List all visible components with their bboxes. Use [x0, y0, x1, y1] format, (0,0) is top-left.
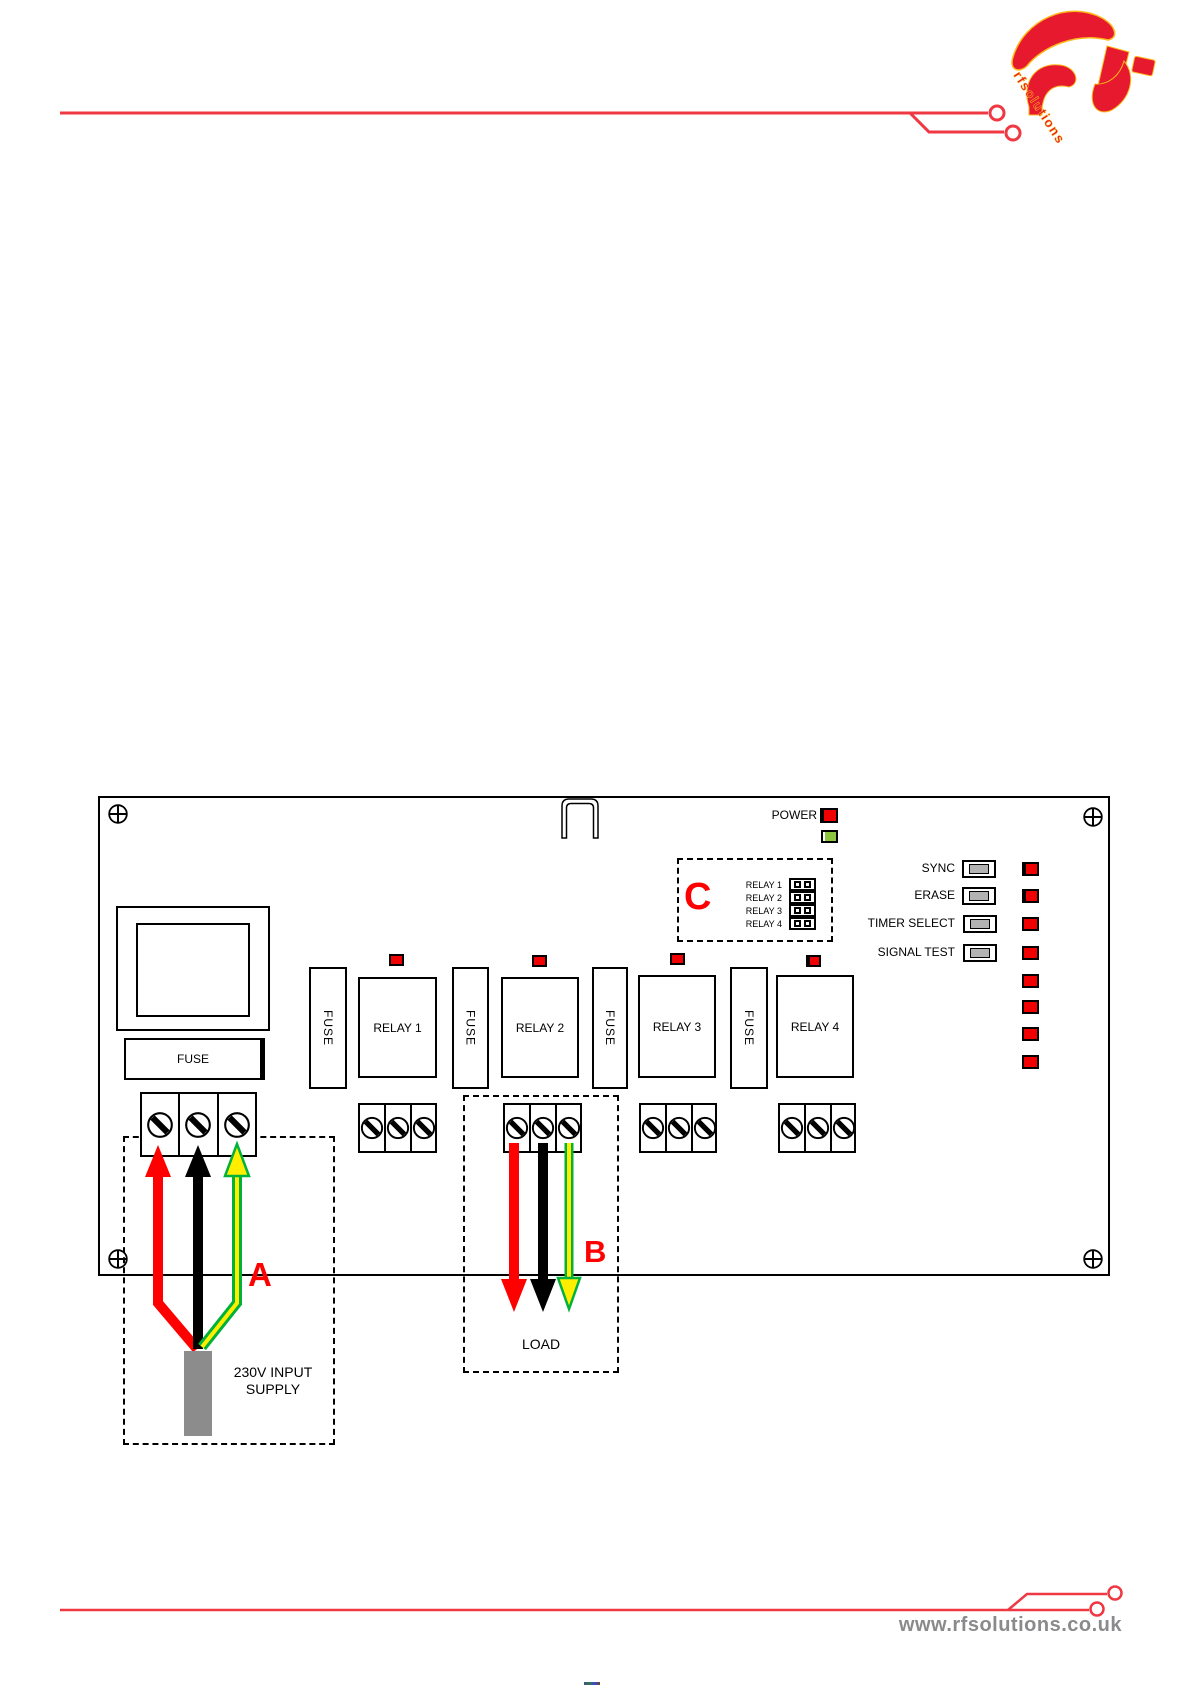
rf-solutions-logo: rfsolutions	[1010, 11, 1155, 147]
terminal-screw-icon	[412, 1116, 436, 1140]
timer-select-button	[963, 915, 997, 933]
status-led	[1022, 1000, 1039, 1014]
status-led	[1022, 946, 1039, 960]
logo-wordmark: rfsolutions	[1010, 68, 1068, 146]
terminal-cell	[505, 1105, 529, 1151]
corner-screw-icon	[1082, 1248, 1104, 1270]
terminal-screw-icon	[360, 1116, 384, 1140]
terminal-cell	[178, 1094, 216, 1155]
terminal-screw-icon	[557, 1116, 581, 1140]
terminal-screw-icon	[531, 1116, 555, 1140]
input-supply-dashed-box	[123, 1136, 335, 1445]
mounting-clip-icon	[555, 793, 605, 839]
power-label: POWER	[667, 808, 817, 822]
terminal-cell	[142, 1094, 178, 1155]
terminal-screw-icon	[832, 1116, 856, 1140]
annotation-letter-a: A	[248, 1258, 272, 1291]
status-led	[1022, 862, 1039, 876]
terminal-screw-icon	[641, 1116, 665, 1140]
button-cap	[969, 864, 989, 874]
erase-button	[962, 887, 996, 905]
terminal-screw-icon	[780, 1116, 804, 1140]
terminal-cell	[691, 1105, 717, 1151]
input-supply-caption-line2: SUPPLY	[197, 1381, 349, 1398]
input-supply-caption-line1: 230V INPUT	[197, 1364, 349, 1381]
relay1-box: RELAY 1	[358, 977, 437, 1078]
signal-test-label: SIGNAL TEST	[805, 945, 955, 959]
status-led	[1022, 1027, 1039, 1041]
logo-r-curl	[1027, 65, 1076, 115]
terminal-cell	[555, 1105, 581, 1151]
relay1-led	[389, 954, 404, 966]
power-green-led	[821, 830, 838, 843]
relay3-led	[670, 953, 685, 965]
annotation-letter-b: B	[584, 1236, 606, 1267]
power-red-led	[820, 808, 838, 823]
input-supply-caption: 230V INPUT SUPPLY	[197, 1364, 349, 1398]
corner-screw-icon	[107, 803, 129, 825]
website-url: www.rfsolutions.co.uk	[822, 1614, 1122, 1637]
logo-bottom-swoosh	[1092, 61, 1131, 112]
status-led	[1022, 889, 1039, 903]
logo-f-crossbar	[1132, 56, 1156, 76]
terminal-cell	[410, 1105, 436, 1151]
fuse-relay4: FUSE	[730, 967, 768, 1089]
relay1-terminal-block	[358, 1103, 437, 1153]
relay3-box: RELAY 3	[638, 975, 716, 1078]
terminal-cell	[641, 1105, 665, 1151]
fuse-relay3: FUSE	[592, 967, 628, 1089]
sync-button	[962, 860, 996, 878]
relay4-box: RELAY 4	[776, 975, 854, 1078]
terminal-screw-icon	[386, 1116, 410, 1140]
terminal-cell	[780, 1105, 804, 1151]
terminal-cell	[830, 1105, 856, 1151]
relay2-terminal-block	[503, 1103, 582, 1153]
logo-f-stem	[1097, 46, 1129, 97]
transformer-core	[136, 923, 250, 1017]
button-cap	[970, 919, 990, 929]
status-led	[1022, 917, 1039, 931]
signal-test-button	[963, 944, 997, 962]
terminal-screw-icon	[806, 1116, 830, 1140]
button-cap	[969, 891, 989, 901]
status-led	[1022, 974, 1039, 988]
relay2-box: RELAY 2	[501, 977, 579, 1078]
load-caption: LOAD	[466, 1336, 616, 1352]
relay2-led	[532, 955, 547, 967]
input-terminal-block	[140, 1092, 257, 1157]
fuse-relay1: FUSE	[309, 967, 347, 1089]
header-trace-decoration	[60, 106, 1020, 140]
terminal-cell	[384, 1105, 410, 1151]
relay4-terminal-block	[778, 1103, 856, 1153]
main-fuse: FUSE	[124, 1038, 265, 1080]
relay3-terminal-block	[639, 1103, 717, 1153]
relay4-led	[806, 955, 821, 967]
terminal-screw-icon	[146, 1111, 174, 1139]
terminal-screw-icon	[184, 1111, 212, 1139]
manual-page: rfsolutions POWER C RELAY 1 RELAY 2 RELA…	[0, 0, 1191, 1685]
fuse-relay2: FUSE	[452, 967, 489, 1089]
annotation-letter-c: C	[684, 878, 711, 916]
status-led	[1022, 1055, 1039, 1069]
button-cap	[970, 948, 990, 958]
corner-screw-icon	[1082, 806, 1104, 828]
terminal-cell	[217, 1094, 255, 1155]
terminal-screw-icon	[667, 1116, 691, 1140]
terminal-screw-icon	[223, 1111, 251, 1139]
terminal-cell	[665, 1105, 691, 1151]
terminal-cell	[804, 1105, 830, 1151]
logo-top-swoosh	[1012, 11, 1115, 70]
terminal-screw-icon	[505, 1116, 529, 1140]
terminal-cell	[360, 1105, 384, 1151]
terminal-cell	[529, 1105, 555, 1151]
footer-trace-decoration	[60, 1587, 1122, 1616]
terminal-screw-icon	[693, 1116, 717, 1140]
